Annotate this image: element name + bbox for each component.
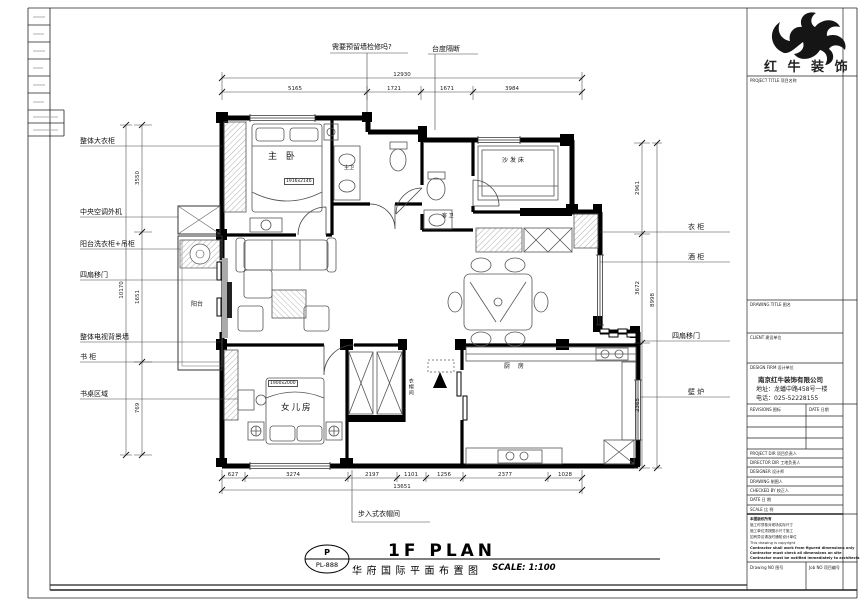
dim-label: 12930 [393,72,411,78]
staff-row-project-dir: PROJECT DIR 项目负责人 [750,451,797,457]
dim-label: 1028 [558,472,572,478]
dimension-lines [120,72,662,494]
room-label-balcony: 阳台 [191,302,203,309]
dim-label: 10170 [119,281,125,299]
callout-fireplace: 壁 炉 [688,388,704,396]
columns [216,112,640,467]
room-label-master: 主 卧 [268,152,298,162]
note-line: 施工时须核对现场实际尺寸 [750,523,793,528]
plan-scale: SCALE: 1:100 [492,563,556,573]
room-label-sofabed: 沙发床 [502,158,526,165]
plan-title-en: 1F PLAN [388,541,496,561]
callout-bookcase: 书 柜 [80,353,96,361]
note-line: 施工单位须按图示尺寸施工 [750,529,793,534]
dim-label: 13651 [393,484,411,490]
dining-table [448,258,548,346]
callout-sliding-door-left: 四扇移门 [80,271,108,279]
dim-label: 2377 [498,472,512,478]
dim-label: 1256 [437,472,451,478]
company-phone: 电话：025-52228155 [756,393,818,402]
staff-row-director: DIRECTOR DIR 工地负责人 [750,460,800,466]
staff-row-drawing: DRAWING 制图人 [750,479,783,485]
kitchen-fixtures [466,347,636,464]
balcony [178,206,222,370]
living-room-furniture [222,238,336,338]
dim-label: 2365 [635,398,641,412]
company-logo-text: 红 牛 装 饰 [764,56,851,75]
sofa-bed-room-furniture [476,146,598,252]
room-label-closet: 衣帽间 [407,378,413,396]
callout-tv-wall: 整体电视背景墙 [80,333,129,341]
project-title-row: PROJECT TITLE 项目名称 [750,78,797,84]
dim-label: 1101 [404,472,418,478]
note-line: This drawing is copyright [750,541,795,545]
drawing-title-label: DRAWING TITLE 图名 [750,302,791,308]
dim-label: 3274 [286,472,300,478]
note-line: Contractor must be notified immediately … [750,556,860,560]
closet-wardrobes [349,352,402,414]
dim-label: 8998 [650,293,656,307]
room-label-daughter: 女儿房 [281,404,313,414]
dim-label: 3550 [135,171,141,185]
callout-sliding-door-right: 四扇移门 [672,332,700,340]
callout-walkin-closet: 步入式衣帽间 [358,510,400,518]
room-label-guest-bath: 客 卫 [442,214,454,220]
room-tag-daughter: 1900x2000 [268,380,298,387]
client-label: CLIENT 建设单位 [750,335,781,341]
callout-wine-cabinet: 酒 柜 [688,253,704,261]
dim-label: 1671 [440,86,454,92]
sheet-code-letter: P [313,548,341,557]
note-line: Contractor must check all dimensions on … [750,551,842,555]
note-line: 如有异议请及时通知设计单位 [750,535,797,540]
company-name: 南京红牛装饰有限公司 [758,374,823,384]
date-col-label: DATE 日期 [809,407,829,413]
plan-title-cn: 华府国际平面布置图 [352,562,483,577]
sheet-code: PL-888 [305,561,349,569]
staff-row-date: DATE 日 期 [750,497,771,503]
callout-wardrobe-large: 整体大衣柜 [80,137,115,145]
windows [250,114,642,470]
dim-label: 2961 [635,181,641,195]
room-label-kitchen: 厨 房 [504,364,527,371]
bathroom-fixtures [334,142,452,229]
staff-row-scale: SCALE 比 例 [750,507,773,513]
dimension-text: 12930 5165 1721 1671 3984 627 3274 2197 … [119,72,656,490]
callout-access-panel: 需要预留墙检修吗? [332,43,392,51]
dim-label: 1721 [387,86,401,92]
callout-partition: 台度隔断 [432,45,460,53]
master-bedroom-furniture [224,122,338,232]
dim-label: 5165 [288,86,302,92]
staff-row-designer: DESIGNER 设计师 [750,469,784,475]
company-address: 地址：龙蟠中路458号一楼 [756,384,827,393]
room-label-master-bath: 主卫 [344,166,354,172]
dim-label: 769 [135,402,141,413]
dim-label: 1651 [135,290,141,304]
job-no-label: Job NO 项目编号 [809,565,840,571]
staff-row-checked: CHECKED BY 校正人 [750,488,789,494]
dim-label: 3672 [635,281,641,295]
dim-label: 2197 [365,472,379,478]
callout-wardrobe-right: 衣 柜 [688,223,704,231]
dim-label: 3984 [505,86,519,92]
room-tag-master: 1916x2146 [284,178,314,185]
design-firm-label: DESIGN FIRM 设计单位 [750,365,794,371]
revisions-label: REVISIONS 图标 [750,407,781,413]
note-line: 本图版权所有 [750,517,772,522]
callout-balcony-laundry: 阳台洗衣柜+吊柜 [80,240,135,248]
note-line: Contractor shall work from figured dimen… [750,546,855,550]
callout-desk-area: 书桌区域 [80,390,108,398]
cad-sheet: 12930 5165 1721 1671 3984 627 3274 2197 … [0,0,860,608]
sheet-frame [28,8,857,598]
floor-plan-drawing: 12930 5165 1721 1671 3984 627 3274 2197 … [0,0,860,608]
callout-ac-outdoor-unit: 中央空调外机 [80,208,122,216]
dim-label: 627 [228,472,239,478]
drawing-no-label: Drawing NO 图号 [750,565,783,571]
